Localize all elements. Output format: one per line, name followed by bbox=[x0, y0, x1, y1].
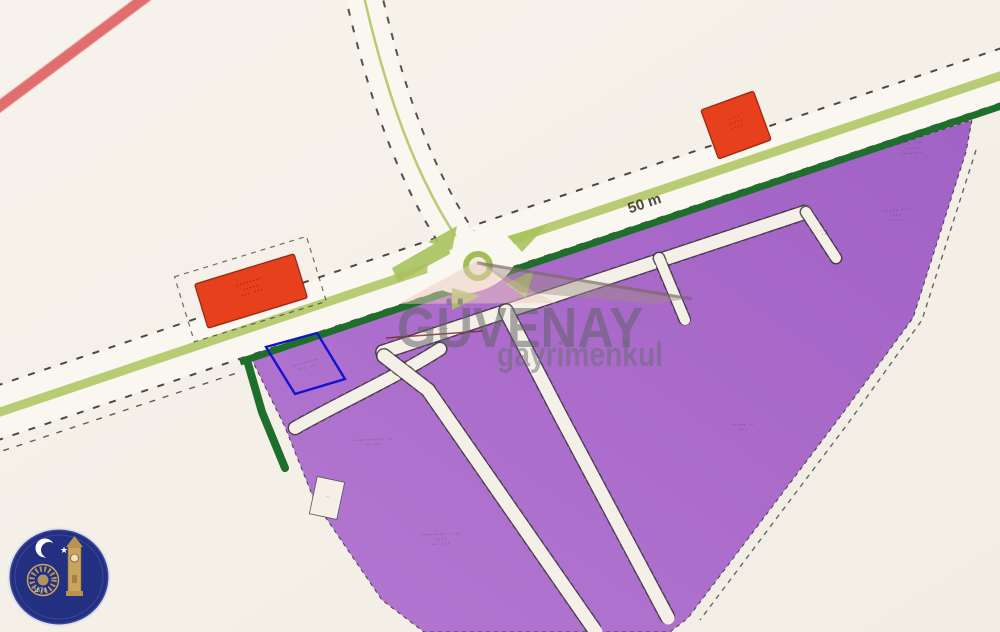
zoning-map: 50 m GÜVENAY gayrimenkul ★ 1876 bbox=[0, 0, 1000, 632]
clock-tower-icon bbox=[66, 536, 83, 596]
logo-year: 1876 bbox=[33, 588, 47, 594]
watermark-subtitle: gayrimenkul bbox=[497, 336, 663, 374]
map-canvas: 50 m GÜVENAY gayrimenkul ★ 1876 bbox=[0, 0, 1000, 632]
